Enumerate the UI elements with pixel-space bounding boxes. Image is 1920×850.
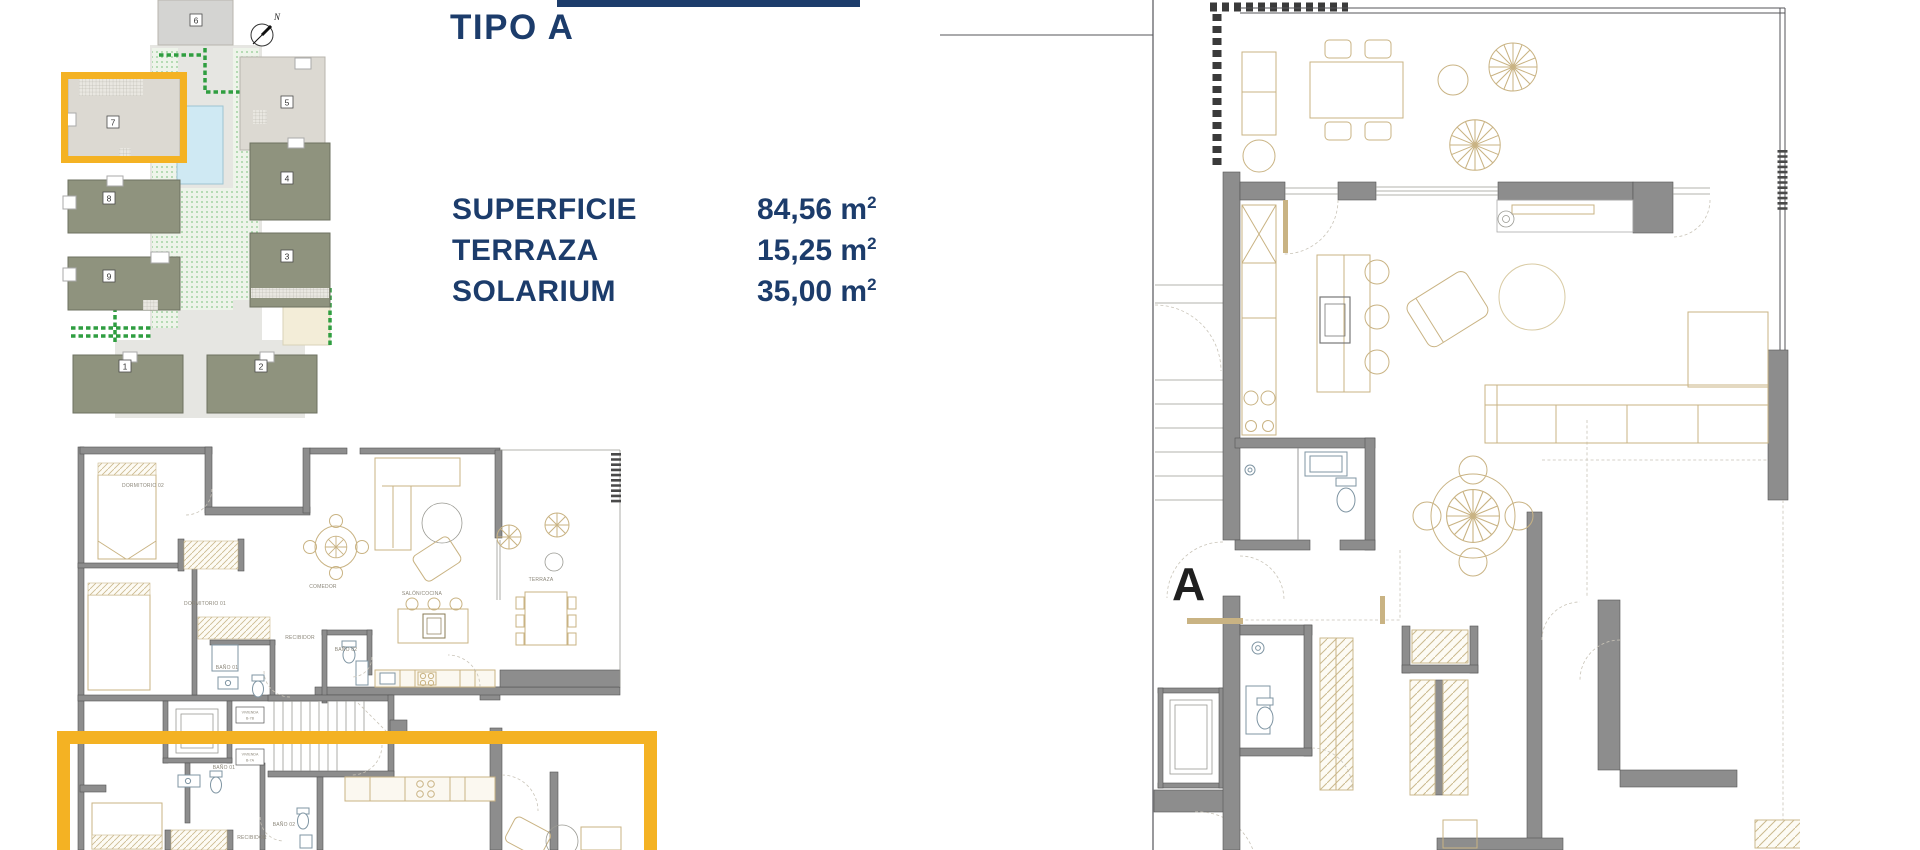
spec-sup: 2	[867, 193, 876, 212]
spec-value: 84,56 m2	[757, 193, 877, 227]
room-label-dormitorio02: DORMITORIO 02	[122, 483, 164, 489]
building-number-5: 5	[285, 98, 290, 108]
site-highlight-box	[61, 72, 187, 163]
building-number-9: 9	[107, 272, 112, 282]
spec-unit: m	[840, 234, 867, 267]
compass-n-label: N	[273, 12, 281, 22]
site-plan: 6 5 7 8 4 9 3 1 2 N	[55, 0, 355, 418]
specs-table: SUPERFICIE 84,56 m2 TERRAZA 15,25 m2 SOL…	[452, 193, 877, 316]
top-navy-bar	[557, 0, 860, 7]
spec-label: TERRAZA	[452, 234, 757, 268]
building-number-4: 4	[285, 174, 290, 184]
room-label-terraza: TERRAZA	[529, 577, 554, 583]
room-label-bano02: BAÑO 02	[335, 646, 358, 653]
spec-value: 15,25 m2	[757, 234, 877, 268]
spec-number: 15,25	[757, 234, 832, 267]
large-plan-core	[940, 0, 1253, 850]
room-label-recibidor: RECIBIDOR	[285, 635, 315, 641]
room-label-bano01: BAÑO 01	[216, 664, 239, 671]
spec-label: SUPERFICIE	[452, 193, 757, 227]
spec-row-superficie: SUPERFICIE 84,56 m2	[452, 193, 877, 234]
spec-unit: m	[840, 193, 867, 226]
spec-label: SOLARIUM	[452, 275, 757, 309]
small-plan-terrace-rail	[497, 450, 620, 687]
spec-value: 35,00 m2	[757, 275, 877, 309]
room-label-salon-cocina: SALÓN/COCINA	[402, 590, 443, 597]
large-plan-brick-hatch	[1210, 7, 1348, 168]
building-number-2: 2	[259, 362, 264, 372]
spec-sup: 2	[867, 234, 876, 253]
spec-sup: 2	[867, 275, 876, 294]
stair-unit-tag: B-7B	[246, 717, 255, 721]
floor-plan-highlight-box	[57, 731, 657, 850]
stair-unit-tag: VIVIENDA	[242, 711, 259, 715]
building-number-1: 1	[123, 362, 128, 372]
page-title: TIPO A	[450, 8, 574, 48]
spec-row-terraza: TERRAZA 15,25 m2	[452, 234, 877, 275]
north-compass-icon: N	[251, 12, 281, 46]
building-number-8: 8	[107, 194, 112, 204]
spec-unit: m	[840, 275, 867, 308]
building-number-3: 3	[285, 252, 290, 262]
building-number-6: 6	[194, 16, 199, 26]
unit-letter-label: A	[1172, 558, 1205, 610]
room-label-dormitorio01: DORMITORIO 01	[184, 601, 226, 607]
spec-number: 84,56	[757, 193, 832, 226]
room-label-comedor: COMEDOR	[309, 584, 337, 590]
floorplan-sheet: TIPO A SUPERFICIE 84,56 m2 TERRAZA 15,25…	[0, 0, 1920, 850]
spec-row-solarium: SOLARIUM 35,00 m2	[452, 275, 877, 316]
spec-number: 35,00	[757, 275, 832, 308]
floor-plan-large: A	[940, 0, 1800, 850]
